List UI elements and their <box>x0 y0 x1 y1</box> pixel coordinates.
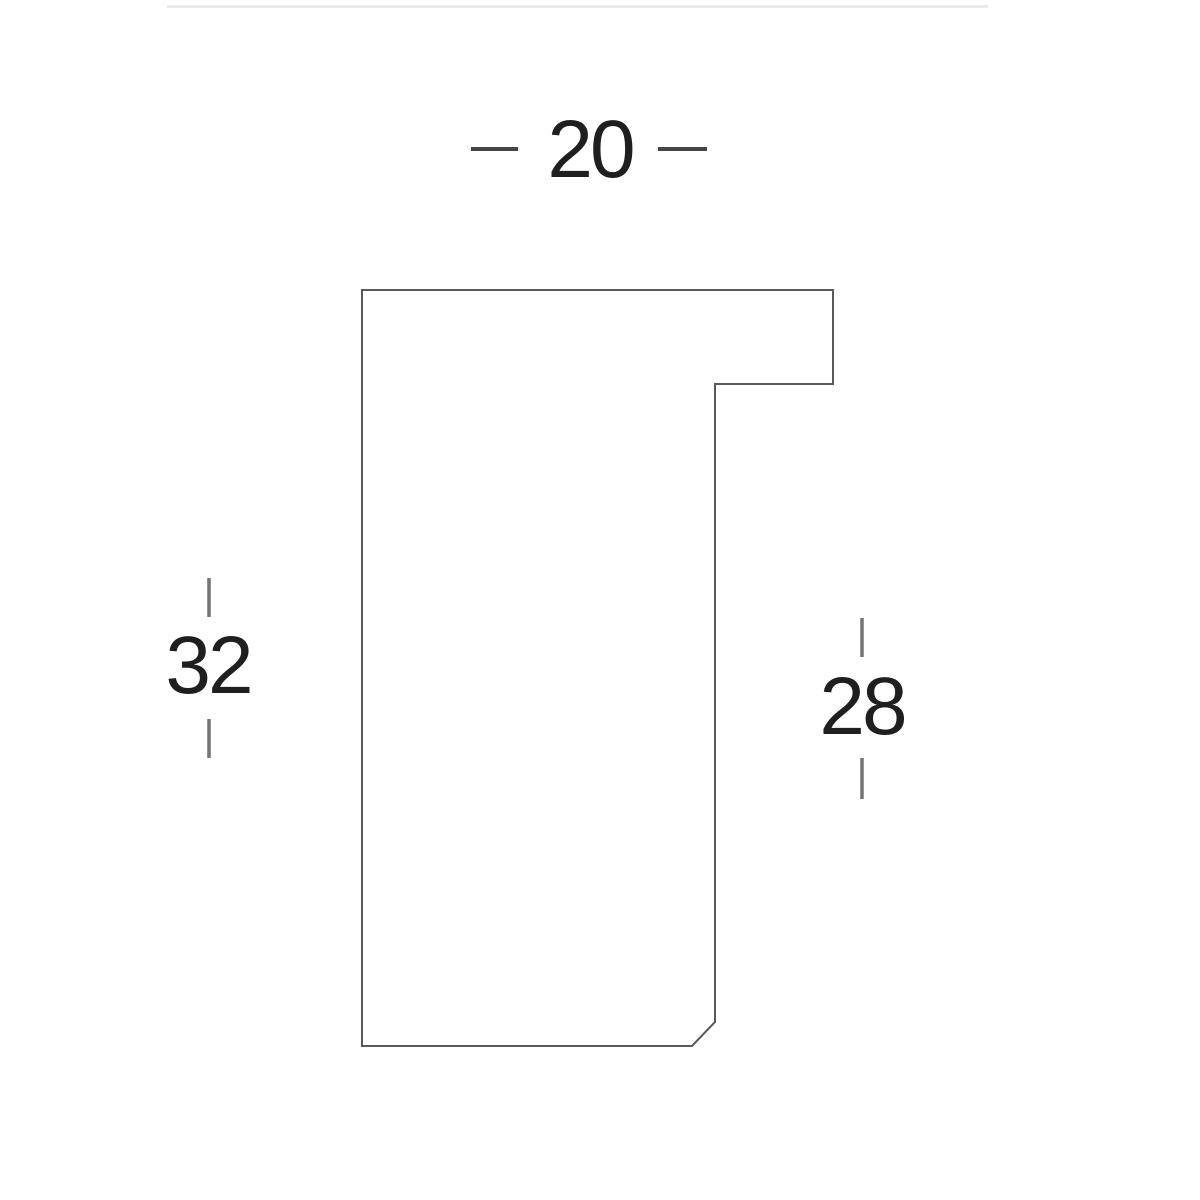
dimension-width-top: 20 <box>471 104 707 195</box>
page-root: 20 32 28 <box>0 0 1200 1200</box>
dimension-height-right: 28 <box>819 618 905 799</box>
profile-diagram: 20 32 28 <box>0 0 1200 1200</box>
profile-outline <box>362 290 833 1046</box>
dimension-height-right-label: 28 <box>819 661 905 752</box>
dimension-height-left-label: 32 <box>165 620 250 711</box>
dimension-width-top-label: 20 <box>547 104 633 195</box>
dimension-height-left: 32 <box>165 578 250 758</box>
